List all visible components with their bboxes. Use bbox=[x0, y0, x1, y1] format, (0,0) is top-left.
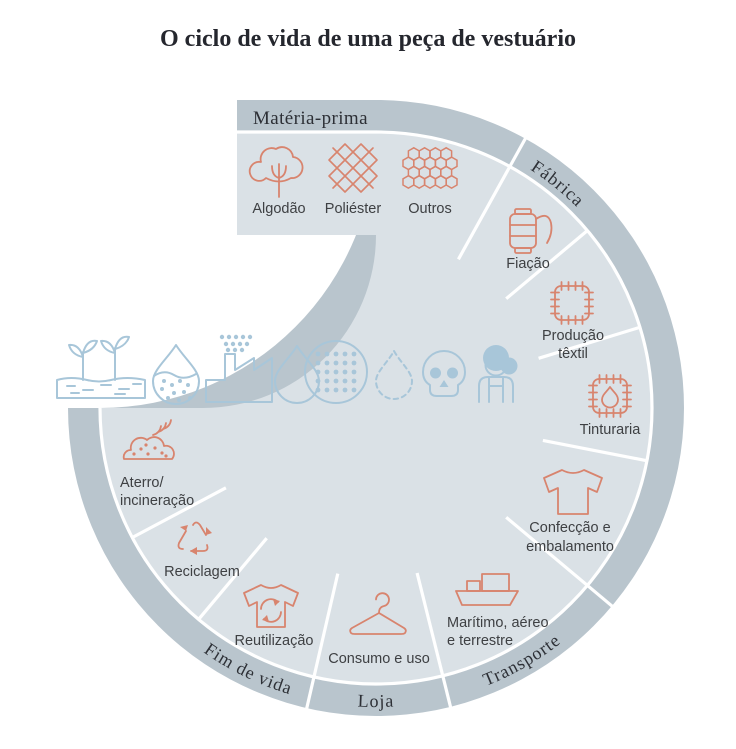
section-label-loja: Loja bbox=[357, 691, 394, 712]
label-outros: Outros bbox=[408, 201, 452, 217]
label-algodao: Algodão bbox=[252, 201, 305, 217]
label-confeccao-l1: Confecção e bbox=[529, 520, 610, 536]
label-fiacao: Fiação bbox=[506, 256, 550, 272]
section-label-materia-prima: Matéria-prima bbox=[253, 108, 368, 129]
label-tinturaria: Tinturaria bbox=[580, 422, 642, 438]
label-confeccao-l2: embalamento bbox=[526, 539, 614, 555]
label-consumo: Consumo e uso bbox=[328, 651, 430, 667]
infographic-garment-lifecycle: O ciclo de vida de uma peça de vestuário… bbox=[0, 0, 736, 749]
label-aterro-l1: Aterro/ bbox=[120, 475, 164, 491]
label-reciclagem: Reciclagem bbox=[164, 564, 240, 580]
label-producao-l1: Produção bbox=[542, 328, 604, 344]
label-poliester: Poliéster bbox=[325, 201, 382, 217]
polyester-weave-icon bbox=[329, 144, 377, 192]
sprouts-soil-icon bbox=[57, 337, 145, 398]
label-aterro-l2: incineração bbox=[120, 493, 194, 509]
page-title: O ciclo de vida de uma peça de vestuário bbox=[160, 26, 576, 52]
lifecycle-diagram: O ciclo de vida de uma peça de vestuário… bbox=[0, 0, 736, 749]
label-producao-l2: têxtil bbox=[558, 346, 588, 362]
label-maritimo-l2: e terrestre bbox=[447, 633, 513, 649]
label-reutilizacao: Reutilização bbox=[235, 633, 314, 649]
label-maritimo-l1: Marítimo, aéreo bbox=[447, 615, 549, 631]
